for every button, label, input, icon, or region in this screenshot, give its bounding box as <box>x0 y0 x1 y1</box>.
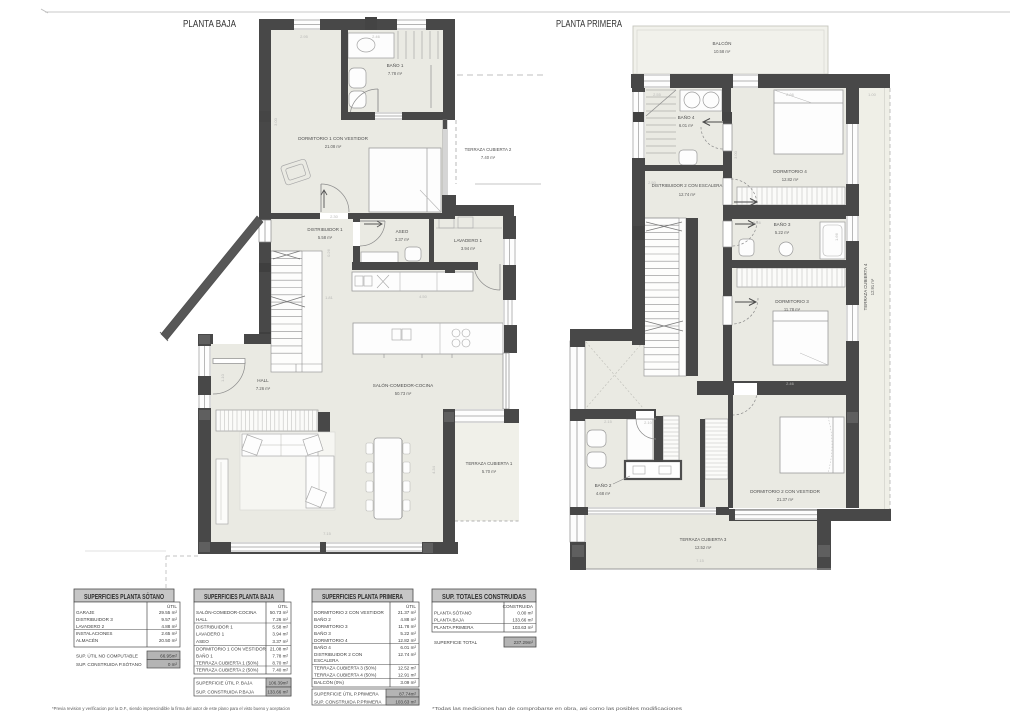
svg-text:29.55 m²: 29.55 m² <box>159 610 178 615</box>
svg-text:2.10: 2.10 <box>644 420 653 425</box>
svg-text:ALMACÉN: ALMACÉN <box>76 637 98 643</box>
svg-text:237.29m²: 237.29m² <box>514 640 534 645</box>
svg-text:SALÓN-COMEDOR-COCINA: SALÓN-COMEDOR-COCINA <box>196 609 257 615</box>
svg-text:0 m²: 0 m² <box>168 662 178 667</box>
svg-text:7.26 m²: 7.26 m² <box>256 386 271 391</box>
svg-text:SUPERFICIE ÚTIL P. BAJA: SUPERFICIE ÚTIL P. BAJA <box>196 680 253 686</box>
svg-text:7.26 m²: 7.26 m² <box>272 617 288 622</box>
svg-text:3.37 m²: 3.37 m² <box>395 237 410 242</box>
svg-text:TERRAZA CUBIERTA 3 (50%): TERRAZA CUBIERTA 3 (50%) <box>314 666 377 671</box>
svg-text:SUPERFICIES PLANTA PRIMERA: SUPERFICIES PLANTA PRIMERA <box>322 594 403 601</box>
svg-text:SUP. CONSTRUIDA P.PRIMERA: SUP. CONSTRUIDA P.PRIMERA <box>314 700 382 705</box>
svg-text:133.66 m²: 133.66 m² <box>267 690 288 695</box>
svg-text:10.58 m²: 10.58 m² <box>714 49 731 54</box>
svg-text:TERRAZA CUBIERTA 1 (50%): TERRAZA CUBIERTA 1 (50%) <box>196 661 259 666</box>
svg-text:2.50: 2.50 <box>648 180 657 185</box>
svg-text:2.15: 2.15 <box>604 419 613 424</box>
svg-text:DORMITORIO 2 CON VESTIDOR: DORMITORIO 2 CON VESTIDOR <box>314 610 385 615</box>
svg-text:6.01 m²: 6.01 m² <box>679 123 694 128</box>
svg-text:12.91 m²: 12.91 m² <box>398 673 417 678</box>
svg-text:SUP. TOTALES CONSTRUIDAS: SUP. TOTALES CONSTRUIDAS <box>442 594 526 601</box>
svg-text:PLANTA BAJA: PLANTA BAJA <box>434 618 465 623</box>
svg-text:BAÑO 3: BAÑO 3 <box>314 630 331 636</box>
svg-text:106.39m²: 106.39m² <box>269 681 289 686</box>
svg-text:12.91 m²: 12.91 m² <box>870 278 875 295</box>
svg-text:1.81: 1.81 <box>325 295 334 300</box>
svg-text:TERRAZA CUBIERTA 4 (50%): TERRAZA CUBIERTA 4 (50%) <box>314 673 377 678</box>
svg-text:DISTRIBUIDOR 2 CON ESCALERA: DISTRIBUIDOR 2 CON ESCALERA <box>652 183 723 188</box>
svg-text:3.94 m²: 3.94 m² <box>461 246 476 251</box>
svg-text:PLANTA PRIMERA: PLANTA PRIMERA <box>434 625 474 630</box>
svg-text:5.58 m²: 5.58 m² <box>272 625 288 630</box>
svg-text:SUPERFICIES PLANTA SÓTANO: SUPERFICIES PLANTA SÓTANO <box>84 592 164 601</box>
svg-text:BAÑO 1: BAÑO 1 <box>196 653 213 659</box>
svg-text:2.30: 2.30 <box>330 214 339 219</box>
svg-text:ASEO: ASEO <box>196 639 209 644</box>
svg-text:5.22 m²: 5.22 m² <box>400 631 416 636</box>
svg-text:CONSTRUIDA: CONSTRUIDA <box>503 604 534 609</box>
svg-text:3.00: 3.00 <box>733 150 738 159</box>
svg-text:21.08 m²: 21.08 m² <box>325 144 342 149</box>
svg-text:BAÑO 1: BAÑO 1 <box>387 62 404 68</box>
svg-text:DORMITORIO 2 CON VESTIDOR: DORMITORIO 2 CON VESTIDOR <box>750 489 821 494</box>
svg-text:20.50 m²: 20.50 m² <box>159 638 178 643</box>
svg-text:1.10: 1.10 <box>220 373 225 382</box>
svg-text:2.55: 2.55 <box>653 92 662 97</box>
svg-text:BAÑO 4: BAÑO 4 <box>678 114 695 120</box>
svg-text:*Previa revision y verificacio: *Previa revision y verificacion por la D… <box>52 706 291 711</box>
svg-text:7.78 m²: 7.78 m² <box>272 654 288 659</box>
svg-text:TERRAZA CUBIERTA 4: TERRAZA CUBIERTA 4 <box>863 263 868 310</box>
svg-text:BAÑO 2: BAÑO 2 <box>314 616 331 622</box>
svg-text:12.82 m²: 12.82 m² <box>782 177 799 182</box>
svg-text:7.40 m²: 7.40 m² <box>272 668 288 673</box>
svg-text:12.52 m²: 12.52 m² <box>695 545 712 550</box>
svg-text:DORMITORIO 1 CON VESTIDOR: DORMITORIO 1 CON VESTIDOR <box>298 136 369 141</box>
svg-text:87.74m²: 87.74m² <box>399 692 416 697</box>
svg-text:4.68 m²: 4.68 m² <box>596 491 611 496</box>
svg-text:SUPERFICIE TOTAL: SUPERFICIE TOTAL <box>434 640 478 645</box>
svg-text:2.66: 2.66 <box>786 92 795 97</box>
svg-text:4.34: 4.34 <box>431 465 436 474</box>
svg-text:TERRAZA CUBIERTA 2: TERRAZA CUBIERTA 2 <box>465 147 512 152</box>
svg-text:103.63 m²: 103.63 m² <box>395 700 416 705</box>
svg-text:7.15: 7.15 <box>696 558 705 563</box>
svg-text:DORMITORIO 3: DORMITORIO 3 <box>314 624 348 629</box>
svg-text:5.58 m²: 5.58 m² <box>318 235 333 240</box>
svg-text:103.63 m²: 103.63 m² <box>512 625 533 630</box>
svg-text:12.82 m²: 12.82 m² <box>398 638 417 643</box>
svg-text:*Todas las mediciones han de c: *Todas las mediciones han de comprobarse… <box>432 706 682 711</box>
svg-text:SUPERFICIES PLANTA BAJA: SUPERFICIES PLANTA BAJA <box>204 594 274 601</box>
svg-text:LAVADERO 1: LAVADERO 1 <box>196 632 225 637</box>
svg-text:7.78 m²: 7.78 m² <box>388 71 403 76</box>
svg-text:2.46: 2.46 <box>786 381 795 386</box>
svg-text:BAÑO 4: BAÑO 4 <box>314 644 331 650</box>
svg-text:TERRAZA CUBIERTA 3: TERRAZA CUBIERTA 3 <box>680 537 727 542</box>
svg-text:4.50: 4.50 <box>419 294 428 299</box>
svg-text:1.00: 1.00 <box>868 92 877 97</box>
svg-text:6.01 m²: 6.01 m² <box>400 645 416 650</box>
svg-text:ESCALERA: ESCALERA <box>314 658 339 663</box>
svg-text:PLANTA SÓTANO: PLANTA SÓTANO <box>434 610 472 616</box>
svg-text:TERRAZA CUBIERTA 1: TERRAZA CUBIERTA 1 <box>466 461 513 466</box>
svg-text:DORMITORIO 1 CON VESTIDOR: DORMITORIO 1 CON VESTIDOR <box>196 647 267 652</box>
svg-text:BAÑO 3: BAÑO 3 <box>774 221 791 227</box>
svg-text:1.66: 1.66 <box>834 232 839 241</box>
svg-text:0.26: 0.26 <box>326 248 331 257</box>
svg-text:4.88 m²: 4.88 m² <box>161 624 177 629</box>
svg-text:3.37 m²: 3.37 m² <box>272 639 288 644</box>
svg-text:11.78 m²: 11.78 m² <box>398 624 416 629</box>
svg-text:PLANTA PRIMERA: PLANTA PRIMERA <box>556 19 622 30</box>
svg-text:LAVADERO 2: LAVADERO 2 <box>76 624 105 629</box>
svg-text:66.95m²: 66.95m² <box>160 654 177 659</box>
svg-text:SUP. ÚTIL NO COMPUTABLE: SUP. ÚTIL NO COMPUTABLE <box>76 653 138 659</box>
svg-text:SALÓN-COMEDOR-COCINA: SALÓN-COMEDOR-COCINA <box>373 382 434 388</box>
svg-text:BALCÓN (0%): BALCÓN (0%) <box>314 679 344 685</box>
svg-text:DISTRIBUIDOR 3: DISTRIBUIDOR 3 <box>76 617 113 622</box>
svg-text:DISTRIBUIDOR 2 CON: DISTRIBUIDOR 2 CON <box>314 652 362 657</box>
svg-text:SUP. CONSTRUIDA P.SÓTANO: SUP. CONSTRUIDA P.SÓTANO <box>76 661 142 667</box>
svg-text:3.94 m²: 3.94 m² <box>272 632 288 637</box>
svg-text:21.37 m²: 21.37 m² <box>398 610 417 615</box>
svg-text:BALCÓN: BALCÓN <box>713 40 732 46</box>
svg-text:5.70 m²: 5.70 m² <box>482 469 497 474</box>
svg-text:HALL: HALL <box>257 378 269 383</box>
svg-text:5.22 m²: 5.22 m² <box>775 230 790 235</box>
svg-text:21.08 m²: 21.08 m² <box>270 647 289 652</box>
svg-text:ASEO: ASEO <box>396 229 409 234</box>
svg-text:LAVADERO 1: LAVADERO 1 <box>454 238 483 243</box>
svg-text:ÚTIL: ÚTIL <box>406 603 416 609</box>
svg-text:2.46: 2.46 <box>753 220 762 225</box>
svg-text:2.46: 2.46 <box>372 34 381 39</box>
svg-text:3.09 m²: 3.09 m² <box>400 680 416 685</box>
svg-text:8.70 m²: 8.70 m² <box>272 661 288 666</box>
svg-text:9.57 m²: 9.57 m² <box>161 617 177 622</box>
svg-text:11.78 m²: 11.78 m² <box>784 307 801 312</box>
svg-text:INSTALACIONES: INSTALACIONES <box>76 631 112 636</box>
svg-text:DORMITORIO 4: DORMITORIO 4 <box>773 169 807 174</box>
svg-text:DORMITORIO 3: DORMITORIO 3 <box>775 299 809 304</box>
svg-text:ÚTIL: ÚTIL <box>167 603 177 609</box>
svg-text:DORMITORIO 4: DORMITORIO 4 <box>314 638 348 643</box>
svg-text:TERRAZA CUBIERTA 2 (50%): TERRAZA CUBIERTA 2 (50%) <box>196 668 259 673</box>
svg-text:50.73 m²: 50.73 m² <box>270 610 289 615</box>
svg-text:DISTRIBUIDOR 1: DISTRIBUIDOR 1 <box>307 227 343 232</box>
svg-text:133.66 m²: 133.66 m² <box>512 618 533 623</box>
svg-text:12.52 m²: 12.52 m² <box>398 666 417 671</box>
svg-text:50.73 m²: 50.73 m² <box>395 391 412 396</box>
svg-text:12.74 m²: 12.74 m² <box>679 192 696 197</box>
svg-text:2.95: 2.95 <box>300 34 309 39</box>
svg-text:7.15: 7.15 <box>323 531 332 536</box>
svg-text:21.37 m²: 21.37 m² <box>777 497 794 502</box>
svg-text:SUPERFICIE ÚTIL P.PRIMERA: SUPERFICIE ÚTIL P.PRIMERA <box>314 691 380 697</box>
svg-text:BAÑO 2: BAÑO 2 <box>595 482 612 488</box>
svg-text:0.00 m²: 0.00 m² <box>517 611 533 616</box>
svg-text:3.00: 3.00 <box>273 117 278 126</box>
svg-text:12.74 m²: 12.74 m² <box>398 652 417 657</box>
svg-text:DISTRIBUIDOR 1: DISTRIBUIDOR 1 <box>196 625 233 630</box>
svg-text:ÚTIL: ÚTIL <box>278 603 288 609</box>
svg-text:HALL: HALL <box>196 617 208 622</box>
svg-text:7.40 m²: 7.40 m² <box>481 155 496 160</box>
svg-text:GARAJE: GARAJE <box>76 610 94 615</box>
svg-text:SUP. CONSTRUIDA P.BAJA: SUP. CONSTRUIDA P.BAJA <box>196 690 255 695</box>
svg-text:2.65 m²: 2.65 m² <box>161 631 177 636</box>
svg-text:PLANTA BAJA: PLANTA BAJA <box>183 19 236 30</box>
svg-text:4.88 m²: 4.88 m² <box>400 617 416 622</box>
